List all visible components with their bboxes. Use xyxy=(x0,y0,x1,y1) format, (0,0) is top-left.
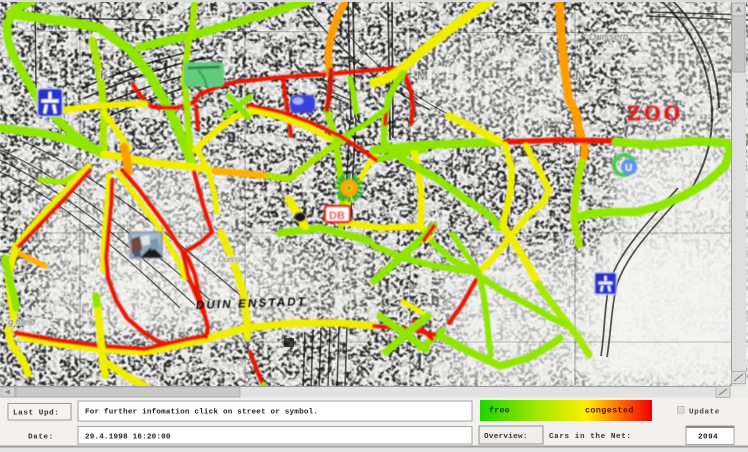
svg-text:ZOO: ZOO xyxy=(627,101,683,125)
svg-text:s Duissw: s Duissw xyxy=(212,255,245,264)
svg-text:free: free xyxy=(489,406,510,416)
svg-text:29.4.1998 16:20:00: 29.4.1998 16:20:00 xyxy=(85,434,171,442)
svg-text:2094: 2094 xyxy=(698,434,718,442)
svg-text:Last Upd:: Last Upd: xyxy=(13,410,59,418)
svg-text:Duissern: Duissern xyxy=(589,32,629,43)
svg-text:M: M xyxy=(417,68,428,83)
svg-text:congested: congested xyxy=(585,406,634,416)
svg-text:U: U xyxy=(625,163,632,174)
svg-text:Cars in the Net:: Cars in the Net: xyxy=(549,433,632,441)
svg-text:Overview:: Overview: xyxy=(484,433,528,441)
svg-text:DB: DB xyxy=(329,210,345,222)
svg-text:K: K xyxy=(100,67,109,82)
svg-text:Update: Update xyxy=(689,409,720,417)
svg-text:DUIN ENSTADT: DUIN ENSTADT xyxy=(196,296,308,312)
svg-text:Date:: Date: xyxy=(28,434,54,442)
svg-text:M d: M d xyxy=(558,237,575,248)
svg-text:For further infomation click o: For further infomation click on street o… xyxy=(85,409,318,417)
svg-text:N: N xyxy=(575,67,586,84)
svg-text:g hfeld: g hfeld xyxy=(8,317,36,327)
